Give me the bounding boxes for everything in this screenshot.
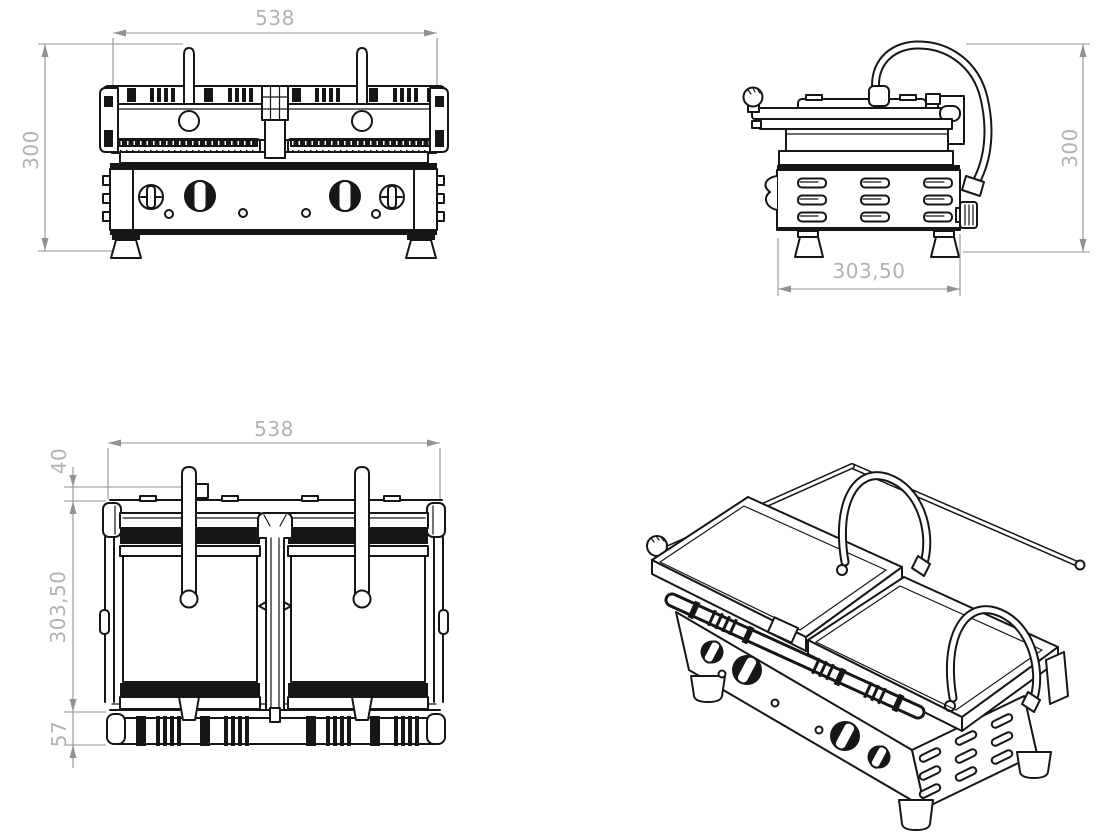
left-hinge-tab — [179, 697, 199, 720]
side-view: 300 303,50 — [690, 0, 1108, 310]
tray-handle-ball[interactable] — [744, 88, 763, 113]
feet — [111, 235, 436, 258]
technical-drawing-sheet: { "drawing": { "subject": "double-contac… — [0, 0, 1108, 838]
side-grill-drawing — [744, 45, 988, 257]
indicator-lamp — [719, 671, 726, 678]
indicator-lamp — [372, 210, 380, 218]
iso-grill-drawing — [647, 466, 1085, 830]
top-grill-drawing — [100, 467, 448, 746]
front-dimension-width: 538 — [113, 6, 437, 86]
front-grill-drawing — [100, 48, 448, 258]
right-pivot — [352, 111, 372, 131]
dimension-label: 303,50 — [833, 259, 906, 283]
dimension-label: 300 — [19, 130, 43, 170]
vent-louvers — [798, 179, 952, 222]
indicator-lamp — [772, 700, 779, 707]
center-divider — [258, 513, 292, 710]
plate-stack — [744, 86, 965, 165]
center-hinge-block — [262, 86, 288, 158]
right-lid-handle[interactable] — [354, 467, 371, 608]
thermostat-knob-left[interactable] — [732, 655, 762, 685]
control-panel — [103, 163, 444, 235]
left-lid-handle — [184, 48, 194, 104]
dimension-label: 538 — [254, 417, 294, 441]
right-hinge-tab — [352, 697, 372, 720]
thermostat-knob-left[interactable] — [184, 180, 216, 212]
dimension-label: 303,50 — [46, 571, 70, 644]
thermostat-knob-right[interactable] — [329, 180, 361, 212]
dimension-label: 57 — [47, 721, 71, 747]
right-lid-handle — [357, 48, 367, 104]
vented-base — [766, 165, 977, 231]
isometric-view — [600, 420, 1108, 838]
timer-knob-right[interactable] — [380, 185, 404, 209]
left-pivot — [179, 111, 199, 131]
indicator-lamp — [239, 209, 247, 217]
timer-knob-left[interactable] — [139, 185, 163, 209]
dimension-label: 538 — [255, 6, 295, 30]
dimension-label: 300 — [1058, 128, 1082, 168]
feet — [795, 231, 959, 257]
indicator-lamp — [302, 209, 310, 217]
dimension-label: 40 — [47, 448, 71, 474]
indicator-lamp — [165, 210, 173, 218]
side-dimension-height: 300 — [963, 44, 1090, 252]
side-knob[interactable] — [956, 202, 977, 228]
tray-handle-bar — [752, 108, 958, 119]
front-view: 538 300 — [0, 0, 600, 300]
indicator-lamp — [816, 727, 823, 734]
thermostat-knob-right[interactable] — [830, 721, 860, 751]
side-clip — [766, 176, 777, 210]
top-view: 538 40 303,50 57 — [0, 400, 520, 838]
